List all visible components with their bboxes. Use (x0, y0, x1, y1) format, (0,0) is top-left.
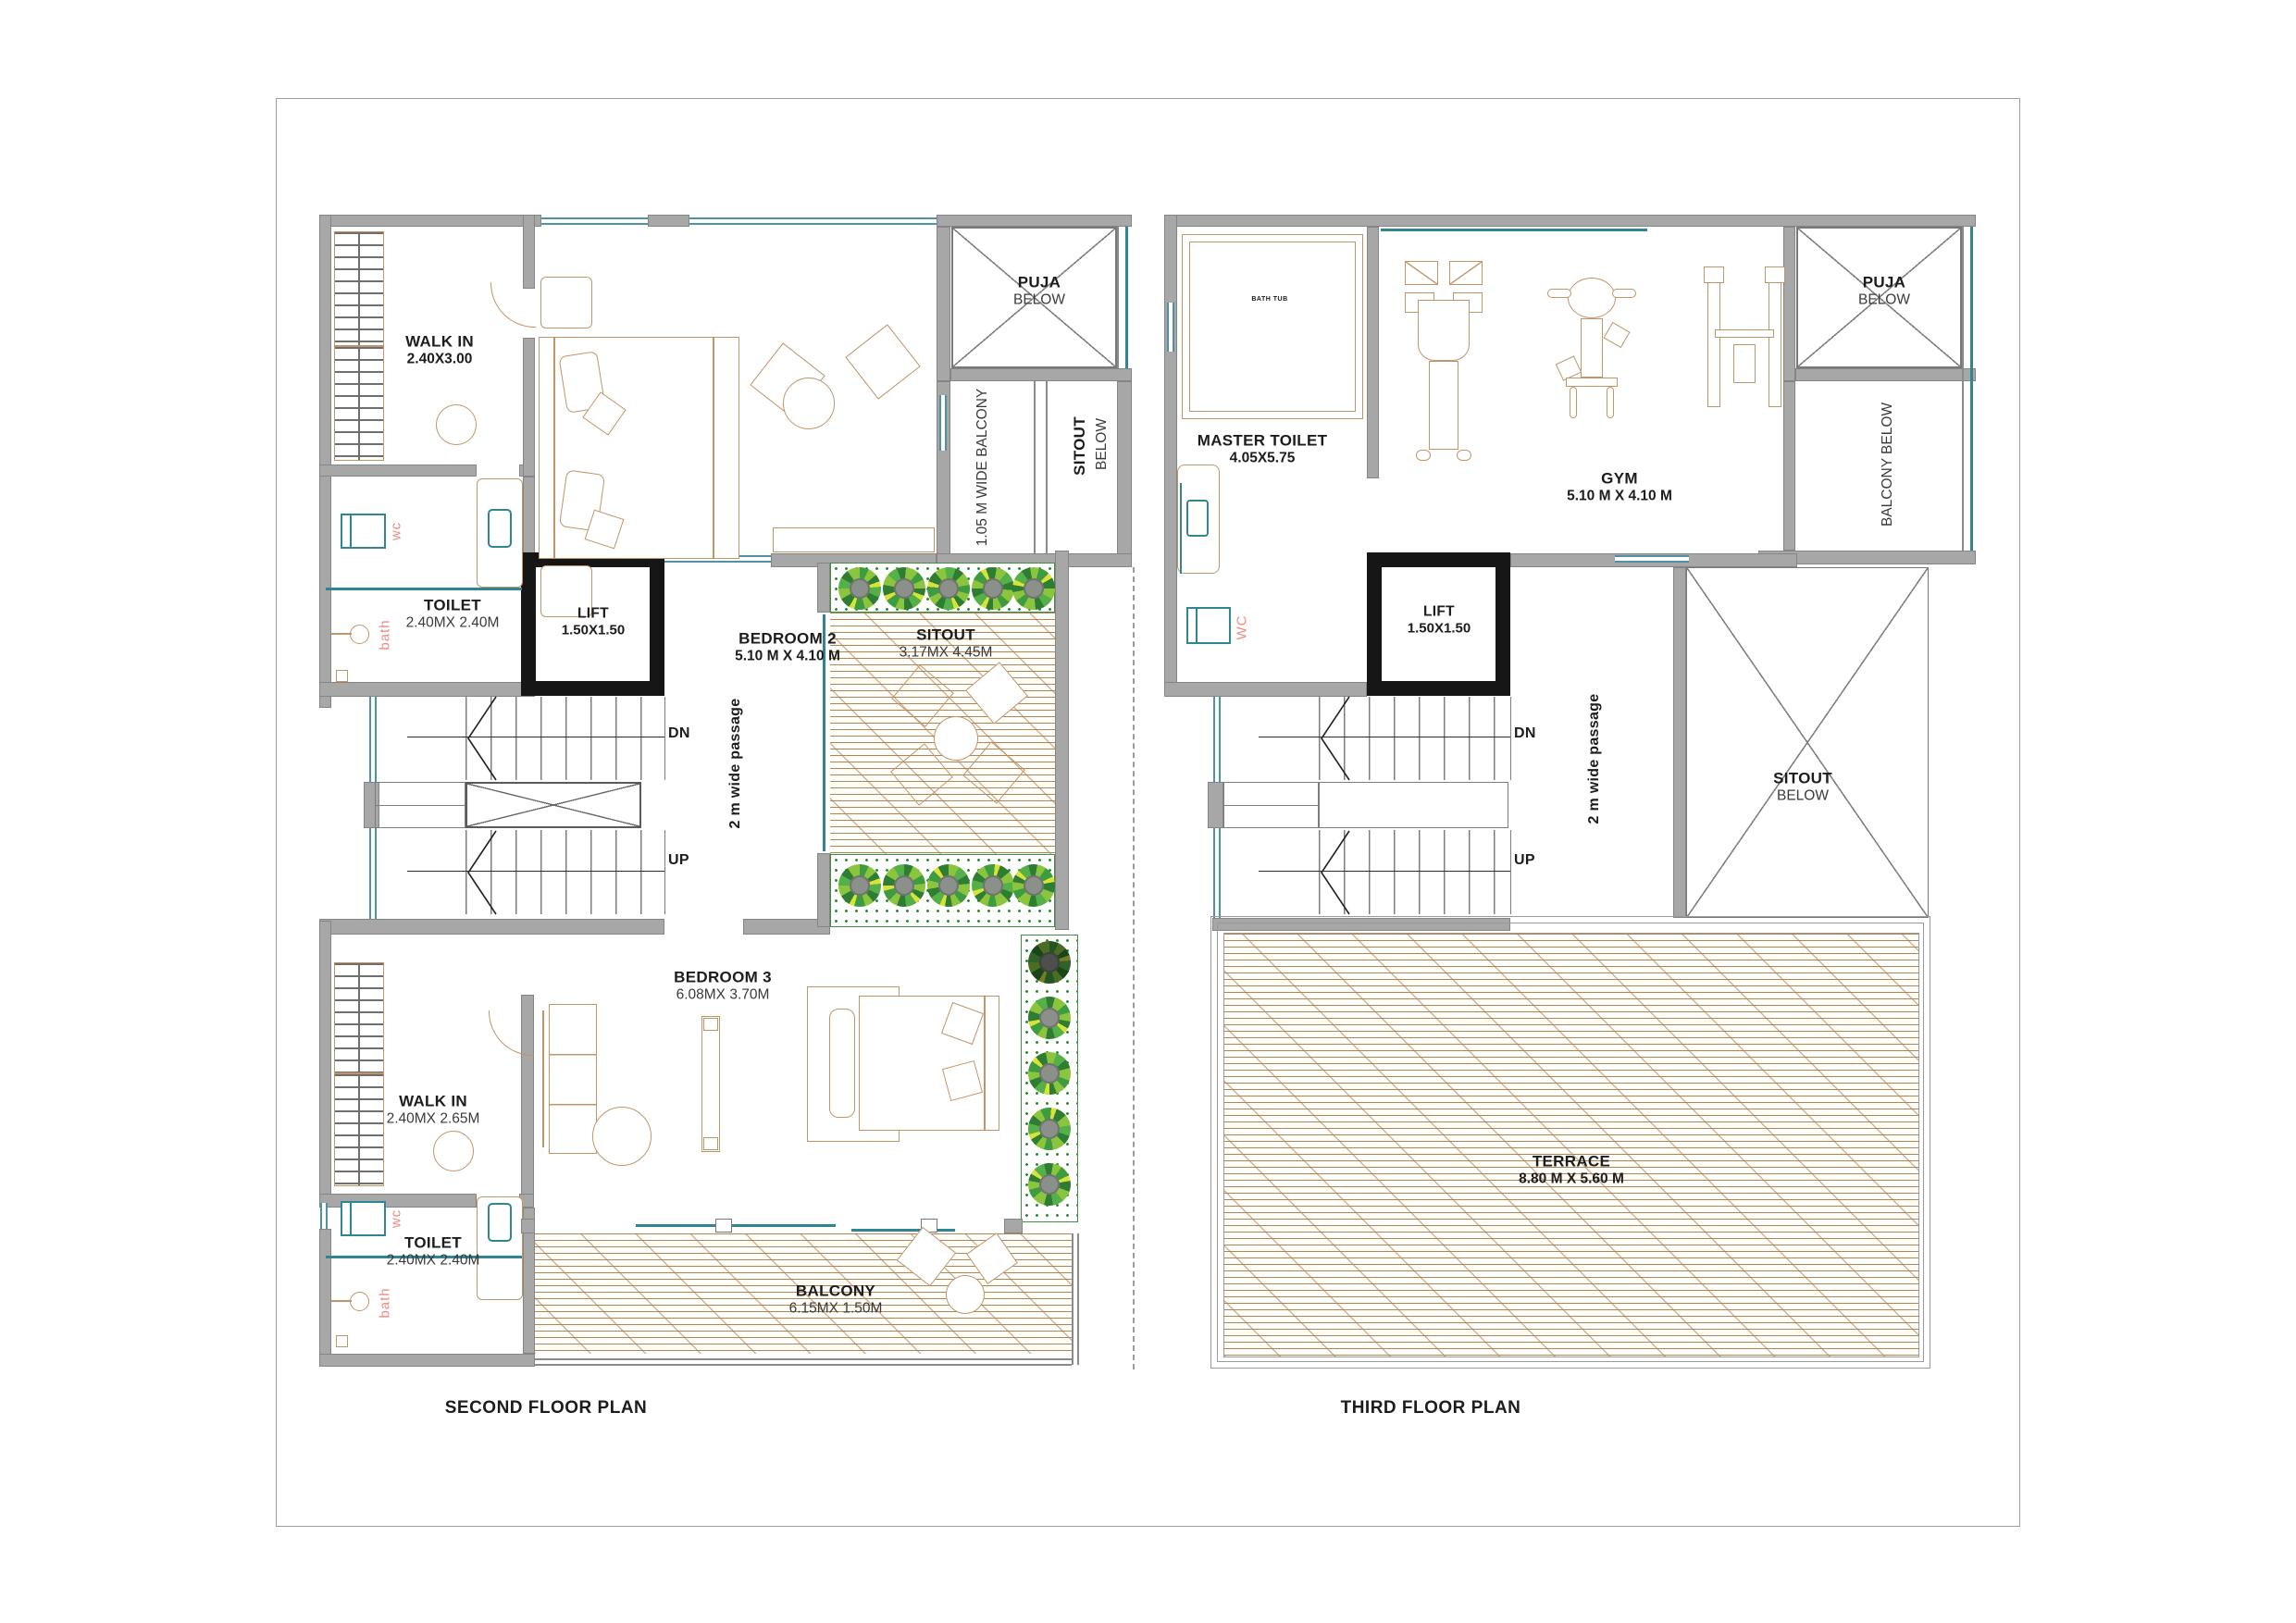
wall (319, 921, 331, 1196)
shrub (1028, 941, 1071, 984)
wall (937, 227, 950, 381)
window-line (1970, 227, 1973, 551)
wall-line (1117, 227, 1119, 368)
stair-void (1319, 782, 1508, 828)
console-table (773, 527, 935, 552)
shrub (838, 567, 881, 610)
shrub (1024, 1104, 1074, 1153)
wc-fixture (1186, 607, 1231, 644)
shrub (875, 857, 934, 915)
label-lift: LIFT1.50X1.50 (1408, 603, 1471, 636)
sliding-door-line (851, 1229, 955, 1232)
stair-walk-line (1259, 871, 1510, 872)
label-wc: wc (388, 522, 403, 540)
balcony-edge (1077, 1233, 1079, 1365)
wall (937, 215, 1132, 227)
wall (319, 919, 664, 935)
label-wc-2: wc (388, 1209, 403, 1228)
gym-bike-leg (1570, 387, 1577, 418)
wc-fixture (341, 1201, 386, 1236)
shrub (1023, 1047, 1077, 1101)
label-balcony-below: BALCONY BELOW (1880, 403, 1896, 527)
label-sitout-below: SITOUT (1071, 416, 1089, 476)
gym-bench-foot (1416, 450, 1431, 461)
sofa (549, 1004, 597, 1154)
tv-console-end (703, 1018, 718, 1031)
wall-stub (1208, 782, 1223, 828)
stair-landing (1223, 782, 1319, 828)
gym-cable-top (1765, 266, 1785, 283)
stair-arrow-icon (463, 697, 500, 780)
room-label-bedroom3: BEDROOM 36.08MX 3.70M (674, 968, 772, 1002)
wc-fixture-detail (350, 515, 352, 547)
planter-strip (830, 854, 1055, 927)
floor-drain (336, 670, 348, 682)
shrub (875, 559, 935, 619)
gym-cable-post (1707, 270, 1720, 407)
shrub (838, 864, 881, 907)
room-label-bedroom2: BEDROOM 25.10 M X 4.10 M (735, 629, 840, 663)
shrub (920, 857, 978, 915)
wall (319, 215, 541, 227)
label-bath: bath (377, 619, 392, 650)
gym-cable-seat (1733, 344, 1756, 383)
label-up: UP (1514, 852, 1535, 869)
wall (523, 215, 535, 289)
boundary-dashed-line (1133, 567, 1135, 1369)
room-label-sitout: SITOUT3.17MX 4.45M (900, 626, 993, 660)
label-wide-balcony: 1.05 M WIDE BALCONY (974, 389, 991, 547)
shrub (1005, 560, 1063, 618)
wall-stub (1004, 1219, 1023, 1233)
wall (319, 465, 477, 477)
gym-press-plate (1449, 261, 1483, 285)
label-dn: DN (668, 725, 690, 742)
window (1615, 555, 1689, 563)
wardrobe (334, 346, 384, 461)
wall (1673, 567, 1686, 918)
balcony-edge (535, 1358, 1072, 1360)
room-label-toilet: TOILET2.40MX 2.40M (406, 596, 500, 630)
wall (1367, 227, 1379, 478)
tv-console (701, 1016, 720, 1152)
label-up: UP (668, 852, 689, 869)
stool (433, 1131, 474, 1171)
label-sitout-below: SITOUTBELOW (1773, 769, 1832, 803)
planter-strip (1021, 935, 1078, 1222)
wall (648, 215, 689, 227)
wall (319, 215, 331, 708)
wall (950, 368, 1132, 381)
gym-cable-bar (1715, 329, 1774, 338)
window (320, 1203, 328, 1229)
partition-glass (326, 588, 522, 590)
sliding-door-line (636, 1224, 836, 1227)
tv-console-end (703, 1137, 718, 1150)
window (939, 395, 947, 451)
wall (319, 1229, 331, 1367)
balcony-edge (535, 1364, 1072, 1366)
shower-head (350, 1292, 369, 1311)
partition-line (1046, 381, 1048, 553)
gym-cable-post (1769, 270, 1781, 407)
shower-arm (331, 633, 352, 635)
label-passage: 2 m wide passage (1586, 694, 1603, 824)
wall (1783, 381, 1795, 551)
room-label-terrace: TERRACE8.80 M X 5.60 M (1519, 1152, 1624, 1186)
room-label-puja: PUJABELOW (1858, 273, 1910, 307)
window (541, 217, 648, 225)
gym-cable-top (1704, 266, 1724, 283)
gym-bike-handle (1612, 289, 1636, 298)
room-label-puja: PUJABELOW (1013, 273, 1065, 307)
plan-title-second-floor: SECOND FLOOR PLAN (445, 1398, 648, 1419)
deck-table (934, 716, 978, 761)
shrub (968, 861, 1017, 910)
bath-tub-inner (1189, 242, 1356, 412)
wall-line (1962, 227, 1964, 551)
wardrobe (334, 1073, 384, 1186)
wall (1055, 551, 1069, 930)
wc-fixture-detail (350, 1203, 352, 1234)
room-label-walk-in-2: WALK IN2.40MX 2.65M (387, 1092, 480, 1126)
wardrobe (334, 962, 384, 1073)
label-wc: WC (1234, 615, 1249, 640)
coffee-table (783, 378, 835, 429)
door-jamb (715, 1219, 732, 1233)
stool (436, 404, 477, 445)
gym-press-plate (1405, 261, 1438, 285)
stair-void (465, 782, 641, 828)
wall-stub (817, 563, 830, 613)
shower-arm (331, 1300, 352, 1302)
label-bath-2: bath (377, 1287, 392, 1318)
nightstand (540, 277, 592, 328)
wardrobe (334, 231, 384, 346)
stair-walk-line (407, 871, 664, 872)
wall (1117, 381, 1132, 567)
round-table (592, 1107, 652, 1166)
room-label-toilet-2: TOILET2.40MX 2.40M (387, 1233, 480, 1268)
gym-bench-seat (1429, 361, 1458, 450)
wall-stub (817, 853, 830, 927)
stair-arrow-icon (1316, 831, 1353, 914)
shrub (1020, 988, 1080, 1048)
room-label-balcony: BALCONY6.15MX 1.50M (789, 1282, 883, 1316)
gym-bench-foot (1457, 450, 1471, 461)
gym-bench (1418, 300, 1470, 361)
deck-table (946, 1275, 985, 1314)
wall (1795, 368, 1976, 381)
gym-bike-head (1568, 278, 1616, 318)
stair-arrow-icon (463, 831, 500, 914)
wall (319, 682, 535, 697)
counter-line (1180, 483, 1182, 574)
room-label-walk-in: WALK IN2.40X3.00 (405, 332, 474, 366)
shrub (924, 564, 973, 613)
shrub (1020, 1155, 1080, 1215)
stair-arrow-icon (1316, 697, 1353, 780)
wash-basin (488, 1203, 512, 1242)
balcony-edge (1072, 1233, 1074, 1365)
room-label-gym: GYM5.10 M X 4.10 M (1567, 469, 1672, 503)
wc-fixture-detail (1196, 609, 1198, 642)
partition-line (1034, 381, 1036, 553)
wall (1783, 227, 1795, 381)
label-sitout-below-2: BELOW (1094, 418, 1111, 470)
stair-walk-line (1259, 737, 1510, 737)
window-line (1381, 229, 1647, 231)
bed-ottoman (829, 1009, 855, 1118)
wall (319, 1354, 535, 1367)
label-dn: DN (1514, 725, 1536, 742)
wall (523, 338, 535, 477)
wall (1164, 682, 1367, 697)
window (1167, 303, 1174, 352)
window (689, 217, 937, 225)
bed-headboard (985, 996, 999, 1131)
gym-bike-handle (1547, 289, 1571, 298)
plan-title-third-floor: THIRD FLOOR PLAN (1341, 1398, 1521, 1419)
gym-bike-leg (1607, 387, 1614, 418)
sitout-void (1686, 567, 1929, 918)
wc-fixture (341, 514, 386, 549)
wall (1164, 215, 1976, 227)
window-line (1125, 227, 1128, 368)
stair-walk-line (407, 737, 664, 737)
terrace-deck (1223, 933, 1919, 1357)
label-bath-tub: BATH TUB (1251, 296, 1287, 304)
gym-bike-body (1581, 318, 1603, 378)
bed-fold-line (713, 337, 714, 559)
floor-drain (336, 1335, 348, 1347)
label-passage: 2 m wide passage (727, 699, 744, 829)
room-label-master-toilet: MASTER TOILET4.05X5.75 (1198, 431, 1328, 465)
label-lift: LIFT1.50X1.50 (562, 605, 625, 638)
bed-headboard (539, 337, 554, 559)
sofa-back-line (542, 1010, 544, 1147)
wash-basin (488, 509, 512, 548)
shower-head (350, 625, 369, 644)
wall (1164, 215, 1177, 696)
gym-bike-base (1566, 378, 1618, 387)
floor-plan-sheet: WALK IN2.40X3.00 TOILET2.40MX 2.40M BEDR… (0, 0, 2296, 1623)
planter-strip (830, 563, 1055, 613)
wall (523, 477, 535, 554)
stair-landing (375, 782, 465, 828)
wash-basin (1186, 500, 1209, 537)
wall-stub (521, 1219, 535, 1233)
